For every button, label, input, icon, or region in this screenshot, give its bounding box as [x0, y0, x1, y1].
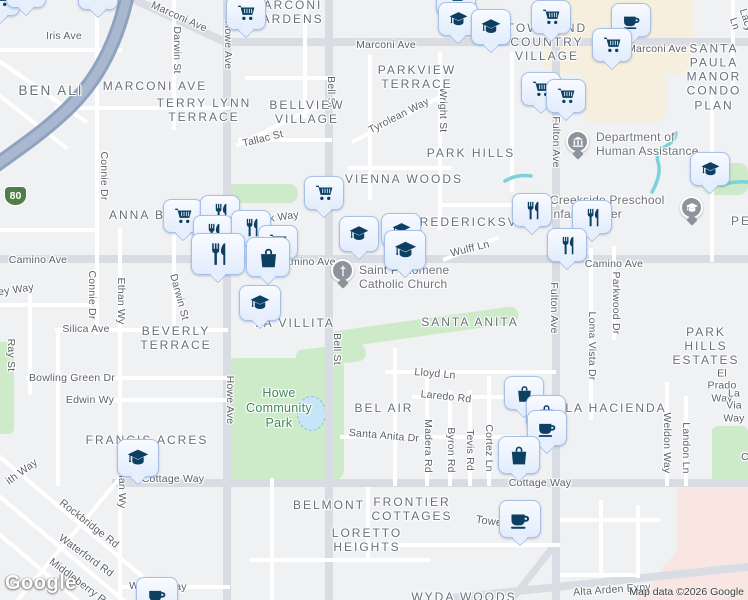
- saint-philomene-church-pin[interactable]: [331, 259, 354, 282]
- street-label: Silica Ave: [62, 323, 109, 335]
- cart-icon: [173, 206, 194, 227]
- hood-label: ANNA B: [109, 208, 165, 222]
- road: [0, 48, 122, 52]
- road: [223, 0, 231, 600]
- highway-80-shield: 80: [4, 186, 27, 206]
- food-marker[interactable]: [547, 228, 587, 262]
- bag-marker[interactable]: [246, 237, 290, 277]
- grad-icon: [480, 16, 502, 38]
- park-label: Howe Community Park: [246, 386, 312, 430]
- road: [112, 479, 748, 487]
- street-label: Darwin St: [171, 26, 183, 73]
- street-label: Fulton Ave: [548, 282, 560, 333]
- street-label: Camino Ave: [9, 254, 67, 266]
- marker-box: [136, 577, 178, 600]
- hood-label: SANTA PAULA MANOR CONDO PLAN: [687, 42, 742, 113]
- road: [245, 76, 330, 80]
- street-label: Connie Dr: [86, 270, 98, 319]
- hood-label: BEVERLY TERRACE: [140, 324, 211, 352]
- cart-marker[interactable]: [531, 0, 571, 34]
- hood-label: MARCONI AVE: [103, 79, 207, 93]
- hood-label: TERRY LYNN TERRACE: [157, 96, 252, 124]
- street-label: Lacy Ln: [725, 7, 748, 37]
- hood-label: LORETTO HEIGHTS: [332, 526, 402, 554]
- grad-marker[interactable]: [117, 439, 159, 477]
- grad-icon: [249, 292, 271, 314]
- commercial-town-country-south: [582, 58, 666, 122]
- road: [0, 228, 95, 232]
- street-label: Ray St: [5, 339, 17, 372]
- hood-label: BELLVIEW VILLAGE: [269, 98, 344, 126]
- creekside-preschool-pin[interactable]: [680, 196, 703, 219]
- street-label: Parkwood Dr: [610, 272, 622, 335]
- cart-icon: [602, 35, 623, 56]
- hood-label: WYDA WOODS: [411, 590, 516, 600]
- hood-label: BEL AIR: [355, 401, 414, 415]
- cart-marker[interactable]: [226, 0, 266, 30]
- grad-icon: [126, 446, 150, 470]
- grad-marker[interactable]: [239, 285, 281, 321]
- street-label: C: [741, 451, 748, 463]
- grad-marker[interactable]: [339, 216, 379, 252]
- grad-marker[interactable]: [471, 9, 511, 45]
- cart-icon: [556, 86, 577, 107]
- cart-icon: [236, 3, 257, 24]
- food-icon: [557, 235, 578, 256]
- road: [250, 558, 430, 562]
- road: [599, 500, 603, 578]
- coffee-icon: [146, 584, 168, 600]
- street-label: Connie Dr: [98, 151, 110, 200]
- cart-marker[interactable]: [6, 0, 46, 8]
- food-icon: [205, 241, 231, 267]
- street-label: Cortez Ln: [483, 424, 495, 471]
- cart-marker[interactable]: [546, 79, 586, 113]
- street-label: Marconi Ave: [356, 39, 416, 51]
- road: [385, 370, 556, 374]
- medical-pink-zone: [636, 487, 748, 600]
- hood-label: PARK HILLS ESTATES: [673, 325, 740, 367]
- bag-icon: [256, 245, 281, 270]
- hood-label: LA HACIENDA: [565, 401, 666, 415]
- hood-label: SANTA ANITA: [421, 315, 519, 329]
- dept-human-assistance-pin[interactable]: [566, 130, 589, 153]
- street-label: Camino Ave: [585, 258, 643, 270]
- hood-label: BEN ALI: [18, 83, 83, 99]
- street-label: Santa Anita Dr: [348, 427, 419, 445]
- road: [510, 52, 514, 192]
- food-icon: [582, 207, 603, 228]
- creek: [505, 176, 531, 181]
- street-label: La Via Way: [723, 387, 744, 424]
- street-label: Bell St: [331, 333, 343, 365]
- street-label: Marconi Ave: [627, 43, 687, 55]
- street-label: Wright St: [437, 88, 449, 133]
- bag-marker[interactable]: [498, 436, 540, 474]
- grad-marker[interactable]: [384, 230, 426, 270]
- grad-marker[interactable]: [690, 152, 730, 186]
- map-canvas[interactable]: 80 Iris AveMarconi AveMarconi AveMarconi…: [0, 0, 748, 600]
- street-label: Loma Vista Dr: [586, 312, 598, 381]
- cart-icon: [314, 183, 335, 204]
- hood-label: BELMONT: [293, 498, 365, 512]
- street-label: Edwin Wy: [66, 394, 114, 406]
- bag-icon: [507, 443, 531, 467]
- cart-marker[interactable]: [304, 176, 344, 210]
- food-marker[interactable]: [191, 233, 245, 275]
- road: [270, 478, 274, 600]
- grad-icon: [348, 223, 370, 245]
- street-label: Tevis Rd: [464, 429, 476, 471]
- cart-marker[interactable]: [78, 0, 118, 10]
- map-attribution: Map data ©2026 Google: [629, 586, 744, 598]
- grad-icon: [393, 238, 418, 263]
- street-label: Landon Ln: [680, 422, 692, 473]
- grad-icon: [700, 159, 721, 180]
- hood-label: FREDERICKSV: [410, 215, 517, 229]
- google-logo[interactable]: Google: [5, 572, 77, 595]
- street-label: Tyrolean Way: [367, 95, 432, 136]
- street-label: Howe Ave: [224, 376, 236, 425]
- street-label: Lloyd Ln: [414, 366, 456, 382]
- road: [393, 348, 397, 486]
- coffee-marker[interactable]: [136, 577, 178, 600]
- street-label: Bowling Green Dr: [29, 372, 115, 384]
- road: [560, 573, 640, 577]
- street-label: Madera Rd: [422, 419, 434, 473]
- road: [560, 518, 660, 522]
- food-icon: [522, 200, 543, 221]
- hood-label: VIENNA WOODS: [345, 172, 463, 186]
- coffee-marker[interactable]: [499, 500, 541, 538]
- road: [636, 505, 640, 578]
- food-marker[interactable]: [512, 193, 552, 227]
- hood-label: PARK HILLS: [427, 146, 515, 160]
- cart-marker[interactable]: [592, 28, 632, 62]
- coffee-icon: [508, 507, 532, 531]
- road: [56, 330, 60, 486]
- poi-label[interactable]: Department of Human Assistance: [596, 130, 699, 158]
- hood-label: PE: [731, 214, 748, 228]
- street-label: Darwin St: [167, 273, 191, 322]
- road: [0, 303, 92, 307]
- street-label: Ethan Wy: [115, 277, 127, 324]
- street-label: k Way: [268, 209, 299, 225]
- church-icon: [336, 264, 350, 278]
- grad-icon: [448, 9, 469, 30]
- cart-icon: [541, 7, 562, 28]
- grad-icon: [685, 201, 699, 215]
- street-label: Iris Ave: [46, 30, 82, 42]
- hood-label: FRONTIER COTTAGES: [371, 495, 452, 523]
- hood-label: PARKVIEW TERRACE: [378, 63, 456, 91]
- street-label: Fulton Ave: [550, 116, 562, 167]
- road: [348, 166, 452, 170]
- bank-icon: [571, 135, 585, 149]
- street-label: Weldon Way: [661, 413, 673, 474]
- street-label: Byron Rd: [445, 427, 457, 472]
